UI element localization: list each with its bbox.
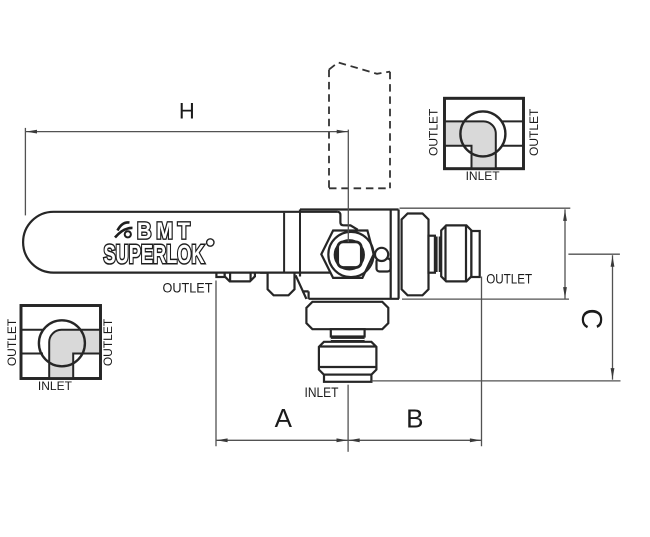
svg-text:A: A xyxy=(275,403,293,433)
svg-text:H: H xyxy=(179,98,195,123)
svg-text:B: B xyxy=(406,404,423,434)
svg-text:OUTLET: OUTLET xyxy=(426,108,440,156)
svg-text:SUPERLOK: SUPERLOK xyxy=(103,239,204,268)
svg-text:OUTLET: OUTLET xyxy=(527,108,541,156)
svg-text:OUTLET: OUTLET xyxy=(163,280,213,296)
svg-text:INLET: INLET xyxy=(305,384,339,400)
svg-text:INLET: INLET xyxy=(466,169,501,183)
svg-text:OUTLET: OUTLET xyxy=(5,318,19,366)
svg-text:C: C xyxy=(575,308,607,329)
svg-text:OUTLET: OUTLET xyxy=(486,270,532,286)
svg-text:OUTLET: OUTLET xyxy=(101,318,115,366)
svg-text:INLET: INLET xyxy=(38,379,73,393)
